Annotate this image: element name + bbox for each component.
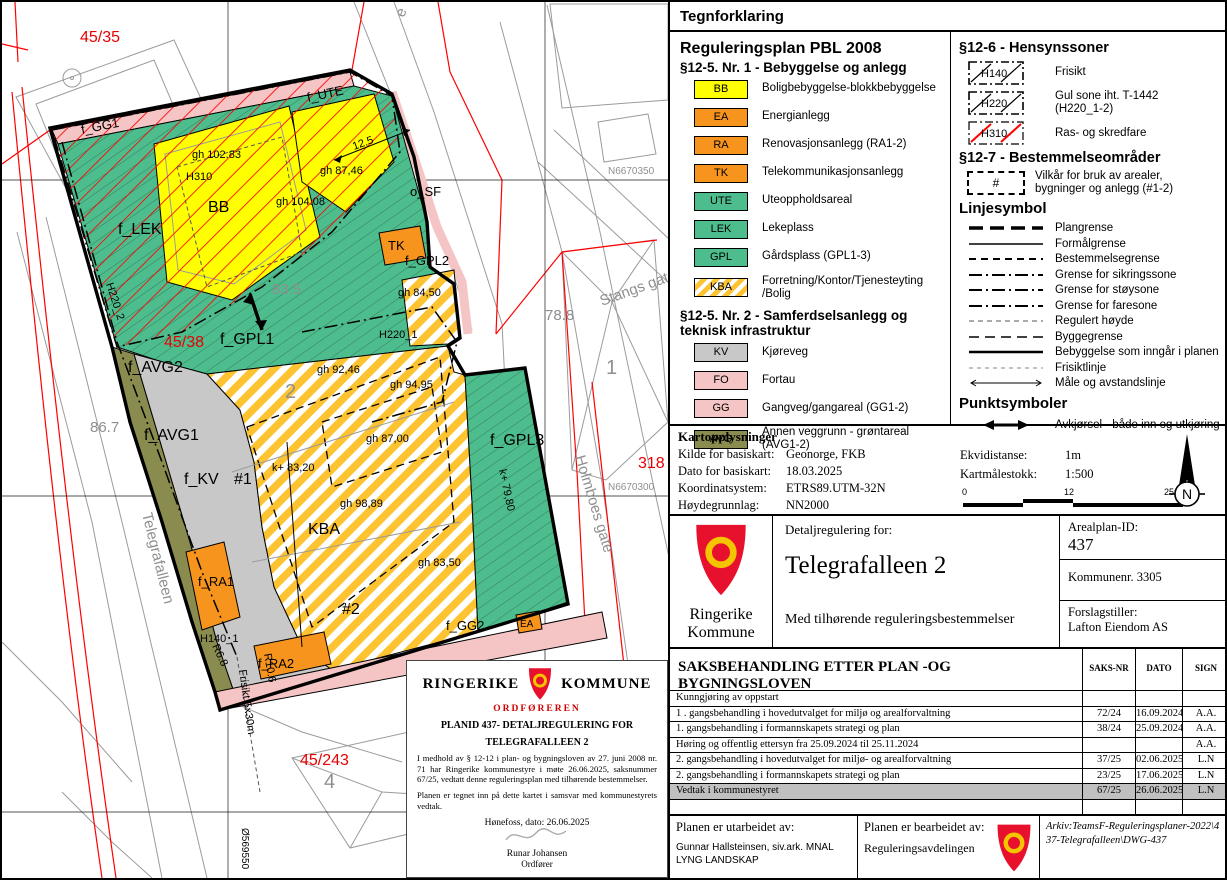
legend-item-label: Ras- og skredfare (1055, 127, 1146, 140)
legend-item-lek: LEKLekeplass (694, 219, 950, 240)
line-item-label: Byggegrense (1055, 331, 1123, 343)
case-row: 1 . gangsbehandling i hovedutvalget for … (670, 707, 1227, 723)
legend-item-ea: EAEnergianlegg (694, 107, 950, 128)
svg-text:83.5: 83.5 (272, 281, 301, 298)
legend-item-hash: # Vilkår for bruk av arealer, bygninger … (967, 170, 1227, 196)
svg-text:KBA: KBA (308, 521, 340, 538)
municipality-logo-cell: Ringerike Kommune (670, 516, 773, 647)
svg-text:f_AVG2: f_AVG2 (128, 359, 183, 376)
legend: Reguleringsplan PBL 2008 §12-5. Nr. 1 - … (670, 32, 1227, 426)
line-item-label: Grense for støysone (1055, 284, 1159, 296)
map-info-value: 1m (1065, 446, 1081, 465)
line-item-label: Grense for sikringssone (1055, 269, 1176, 281)
h140-hatch-chip: H140 (967, 60, 1045, 86)
map-info-value: 18.03.2025 (786, 463, 916, 480)
svg-text:f_RA1: f_RA1 (198, 574, 234, 589)
processed-by-cell: Planen er bearbeidet av: Reguleringsavde… (858, 816, 1040, 878)
gpl-color-chip: GPL (694, 248, 748, 267)
fo-color-chip: FO (694, 371, 748, 390)
svg-text:f_GPL2: f_GPL2 (405, 253, 449, 268)
col-saksnr: SAKS-NR (1082, 649, 1135, 690)
bb-color-chip: BB (694, 80, 748, 99)
svg-text:f_GPL1: f_GPL1 (220, 331, 274, 348)
legend-linjesymbol-heading: Linjesymbol (959, 200, 1227, 217)
plan-id-cells: Arealplan-ID: 437 Kommunenr. 3305 Forsla… (1060, 516, 1227, 647)
svg-text:gh 84,50: gh 84,50 (398, 287, 441, 299)
map-info-box: Kartopplysninger Kilde for basiskart:Geo… (670, 426, 1227, 516)
line-item: Formålgrense (967, 236, 1227, 252)
svg-text:12: 12 (1064, 487, 1074, 497)
stamp-paragraph1: I medhold av § 12-12 i plan- og bygnings… (417, 753, 657, 785)
legend-item-label: Frisikt (1055, 66, 1086, 79)
svg-text:1: 1 (606, 357, 617, 379)
svg-text:f_GG2: f_GG2 (446, 618, 484, 633)
legend-item-kba: KBAForretning/Kontor/Tjenesteyting /Boli… (694, 275, 950, 301)
svg-text:4: 4 (324, 771, 335, 793)
ringerike-shield-icon (527, 667, 553, 701)
stamp-name-left: RINGERIKE (423, 676, 520, 693)
stamp-name-right: KOMMUNE (561, 676, 651, 693)
svg-text:N6670300: N6670300 (608, 482, 655, 493)
gg-color-chip: GG (694, 399, 748, 418)
map-info-label: Kilde for basiskart: (670, 446, 786, 463)
line-item: Regulert høyde (967, 313, 1227, 329)
svg-text:f_LEK: f_LEK (118, 221, 162, 238)
municipality-name: Ringerike Kommune (670, 606, 772, 641)
stamp-header: RINGERIKE KOMMUNE (417, 667, 657, 701)
case-row: Høring og offentlig ettersyn fra 25.09.2… (670, 738, 1227, 754)
kv-color-chip: KV (694, 343, 748, 362)
signature-icon (502, 828, 572, 844)
svg-text:45/38: 45/38 (164, 334, 204, 351)
legend-s127-heading: §12-7 - Bestemmelseområder (959, 150, 1227, 167)
h220-hatch-chip: H220 (967, 90, 1045, 116)
stamp-signer: Runar Johansen (417, 849, 657, 859)
map-info-heading: Kartopplysninger (670, 426, 1227, 446)
case-processing-table: SAKSBEHANDLING ETTER PLAN -OG BYGNINGSLO… (670, 649, 1227, 816)
plan-sheet: 45/35 45/38 45/243 318 4 1 78.8 86.7 83.… (0, 0, 1227, 880)
svg-text:gh 92,46: gh 92,46 (317, 364, 360, 376)
svg-text:318: 318 (638, 455, 665, 472)
legend-item-ute: UTEUteoppholdsareal (694, 191, 950, 212)
plan-subtitle: Med tilhørende reguleringsbestemmelser (785, 612, 1059, 628)
detail-label: Detaljregulering for: (785, 522, 1059, 538)
legend-item-gg: GGGangveg/gangareal (GG1-2) (694, 398, 950, 419)
legend-item-bb: BBBoligbebyggelse-blokkbebyggelse (694, 79, 950, 100)
legend-item-tk: TKTelekommunikasjonsanlegg (694, 163, 950, 184)
legend-plan-heading: Reguleringsplan PBL 2008 (680, 40, 950, 58)
svg-text:f_AVG1: f_AVG1 (144, 427, 199, 444)
stamp-role: ORDFØREREN (417, 704, 657, 714)
line-item-label: Regulert høyde (1055, 315, 1134, 327)
svg-text:#1: #1 (234, 471, 252, 488)
legend-punktsymboler-heading: Punktsymboler (959, 395, 1227, 412)
svg-text:f_KV: f_KV (184, 471, 219, 488)
legend-item-ra: RARenovasjonsanlegg (RA1-2) (694, 135, 950, 156)
line-item-label: Måle og avstandslinje (1055, 377, 1166, 389)
legend-item-h140: H140 Frisikt (967, 60, 1227, 86)
title-block: Ringerike Kommune Detaljregulering for: … (670, 516, 1227, 649)
lek-color-chip: LEK (694, 220, 748, 239)
stamp-title1: PLANID 437- DETALJREGULERING FOR (417, 720, 657, 731)
svg-text:H220: H220 (981, 98, 1007, 110)
col-sign: SIGN (1182, 649, 1227, 690)
svg-text:H310: H310 (981, 128, 1007, 140)
footer-block: Planen er utarbeidet av: Gunnar Hallstei… (670, 816, 1227, 878)
approval-stamp: RINGERIKE KOMMUNE ORDFØREREN PLANID 437-… (406, 660, 668, 878)
forslagstiller-cell: Forslagstiller: Lafton Eiendom AS (1060, 601, 1227, 647)
svg-text:Ø569550: Ø569550 (239, 828, 250, 870)
svg-text:gh 83,50: gh 83,50 (418, 557, 461, 569)
line-item-label: Bebyggelse som inngår i planen (1055, 346, 1219, 358)
svg-text:gh 87,46: gh 87,46 (320, 165, 363, 177)
legend-s125-nr2-heading: §12-5. Nr. 2 - Samferdselsanlegg og tekn… (680, 308, 930, 339)
map-info-label: Dato for basiskart: (670, 463, 786, 480)
case-row (670, 800, 1227, 816)
arealplan-id-cell: Arealplan-ID: 437 (1060, 516, 1227, 560)
svg-text:N6670350: N6670350 (608, 166, 655, 177)
line-item: Bebyggelse som inngår i planen (967, 344, 1227, 360)
legend-item-label: Uteoppholdsareal (762, 194, 852, 207)
svg-text:TK: TK (388, 238, 405, 253)
svg-text:f_GPL3: f_GPL3 (490, 432, 544, 449)
case-row-decision: Vedtak i kommunestyret67/2526.06.2025L.N (670, 784, 1227, 800)
map-info-row: Kartmålestokk:1:500 (960, 465, 1150, 484)
legend-item-label: Boligbebyggelse-blokkbebyggelse (762, 82, 936, 95)
case-row: 2. gangsbehandling i hovedutvalget for m… (670, 753, 1227, 769)
svg-text:#2: #2 (342, 601, 360, 618)
legend-item-label: Forretning/Kontor/Tjenesteyting /Bolig (762, 275, 950, 301)
case-table-header: SAKSBEHANDLING ETTER PLAN -OG BYGNINGSLO… (670, 649, 1227, 691)
legend-item-label: Vilkår for bruk av arealer, bygninger og… (1035, 170, 1195, 196)
line-item-label: Frisiktlinje (1055, 362, 1106, 374)
svg-text:gh 94,95: gh 94,95 (390, 379, 433, 391)
case-row: 1. gangsbehandling i formannskapets stra… (670, 722, 1227, 738)
legend-item-label: Lekeplass (762, 222, 814, 235)
svg-text:0: 0 (962, 487, 967, 497)
legend-s126-heading: §12-6 - Hensynssoner (959, 40, 1227, 57)
svg-text:gh 104.08: gh 104.08 (276, 196, 325, 208)
stamp-paragraph2: Planen er tegnet inn på dette kartet i s… (417, 790, 657, 811)
case-row: Kunngjøring av oppstart (670, 691, 1227, 707)
svg-text:BB: BB (208, 199, 229, 216)
h310-hatch-chip: H310 (967, 120, 1045, 146)
map-info-value: Geonorge, FKB (786, 446, 916, 463)
legend-item-label: Energianlegg (762, 110, 830, 123)
ra-color-chip: RA (694, 136, 748, 155)
prepared-by-label: Planen er utarbeidet av: (676, 820, 851, 835)
prepared-by-cell: Planen er utarbeidet av: Gunnar Hallstei… (670, 816, 858, 878)
line-item-label: Bestemmelsegrense (1055, 253, 1160, 265)
legend-right-column: §12-6 - Hensynssoner H140 Frisikt H220 (950, 32, 1227, 424)
prepared-by-value: Gunnar Hallsteinsen, siv.ark. MNAL LYNG … (676, 842, 851, 867)
svg-text:o_SF: o_SF (410, 184, 441, 199)
legend-item-label: Gul sone iht. T-1442 (H220_1-2) (1055, 90, 1195, 116)
svg-text:k+ 83,20: k+ 83,20 (272, 462, 315, 474)
legend-item-label: Gangveg/gangareal (GG1-2) (762, 402, 908, 415)
line-item: Måle og avstandslinje (967, 375, 1227, 391)
legend-item-label: Renovasjonsanlegg (RA1-2) (762, 138, 906, 151)
legend-item-gpl: GPLGårdsplass (GPL1-3) (694, 247, 950, 268)
legend-item-h310: H310 Ras- og skredfare (967, 120, 1227, 146)
plan-map: 45/35 45/38 45/243 318 4 1 78.8 86.7 83.… (2, 2, 670, 878)
svg-text:gh 98,89: gh 98,89 (340, 498, 383, 510)
legend-item-label: Kjøreveg (762, 346, 808, 359)
kommunenr-cell: Kommunenr. 3305 (1060, 560, 1227, 601)
line-item: Bestemmelsegrense (967, 251, 1227, 267)
svg-text:45/35: 45/35 (80, 29, 120, 46)
plan-name: Telegrafalleen 2 (785, 552, 1059, 580)
male-avstand-line-icon (967, 378, 1045, 388)
legend-item-label: Telekommunikasjonsanlegg (762, 166, 903, 179)
stamp-title2: TELEGRAFALLEEN 2 (417, 737, 657, 748)
legend-item-label: Gårdsplass (GPL1-3) (762, 250, 871, 263)
plan-title-cell: Detaljregulering for: Telegrafalleen 2 M… (773, 516, 1060, 647)
info-panel: Tegnforklaring Reguleringsplan PBL 2008 … (668, 2, 1227, 878)
processed-by-label: Planen er bearbeidet av: (864, 820, 995, 835)
line-item: Frisiktlinje (967, 360, 1227, 376)
map-info-row: Ekvidistanse:1m (960, 446, 1150, 465)
svg-text:H220_1: H220_1 (379, 329, 418, 341)
map-info-right: Ekvidistanse:1m Kartmålestokk:1:500 (960, 446, 1150, 484)
map-info-label: Koordinatsystem: (670, 480, 786, 497)
map-info-label: Ekvidistanse: (960, 446, 1065, 465)
svg-text:EA: EA (520, 619, 534, 630)
legend-title: Tegnforklaring (670, 2, 1227, 32)
line-item: Plangrense (967, 220, 1227, 236)
svg-text:78.8: 78.8 (545, 307, 574, 324)
line-item: Byggegrense (967, 329, 1227, 345)
ringerike-shield-icon (995, 822, 1033, 874)
line-item: Grense for faresone (967, 298, 1227, 314)
line-item-label: Grense for faresone (1055, 300, 1157, 312)
legend-item-h220: H220 Gul sone iht. T-1442 (H220_1-2) (967, 90, 1227, 116)
map-info-value: NN2000 (786, 497, 916, 514)
legend-item-label: Fortau (762, 374, 795, 387)
stamp-place-date: Hønefoss, dato: 26.06.2025 (417, 818, 657, 828)
svg-text:H140: H140 (981, 68, 1007, 80)
map-info-label: Høydegrunnlag: (670, 497, 786, 514)
svg-text:gh 87,00: gh 87,00 (366, 433, 409, 445)
legend-left-column: Reguleringsplan PBL 2008 §12-5. Nr. 1 - … (670, 32, 950, 424)
case-row: 2. gangsbehandling i formannskapets stra… (670, 769, 1227, 785)
map-info-label: Kartmålestokk: (960, 465, 1065, 484)
line-item-label: Formålgrense (1055, 238, 1126, 250)
svg-text:45/243: 45/243 (300, 752, 349, 769)
archive-cell: Arkiv:TeamsF-Reguleringsplaner-2022\437-… (1040, 816, 1227, 878)
tk-color-chip: TK (694, 164, 748, 183)
north-arrow-icon: N (1158, 430, 1216, 514)
line-item: Grense for sikringssone (967, 267, 1227, 283)
svg-text:H310: H310 (186, 171, 212, 183)
legend-item-fo: FOFortau (694, 370, 950, 391)
archive-path: Arkiv:TeamsF-Reguleringsplaner-2022\437-… (1046, 820, 1223, 847)
map-info-value: 1:500 (1065, 465, 1093, 484)
svg-text:86.7: 86.7 (90, 419, 119, 436)
svg-text:2: 2 (285, 381, 296, 403)
ute-color-chip: UTE (694, 192, 748, 211)
line-item-label: Plangrense (1055, 222, 1113, 234)
kba-color-chip: KBA (694, 278, 748, 297)
svg-text:gh 102.83: gh 102.83 (192, 149, 241, 161)
legend-s125-nr1-heading: §12-5. Nr. 1 - Bebyggelse og anlegg (680, 60, 950, 76)
ringerike-shield-icon (692, 522, 750, 598)
case-table-title: SAKSBEHANDLING ETTER PLAN -OG BYGNINGSLO… (670, 649, 1082, 690)
processed-by-value: Reguleringsavdelingen (864, 841, 995, 856)
map-info-value: ETRS89.UTM-32N (786, 480, 916, 497)
col-dato: DATO (1135, 649, 1182, 690)
line-item: Grense for støysone (967, 282, 1227, 298)
legend-item-kv: KVKjøreveg (694, 342, 950, 363)
bestemmelse-chip: # (967, 171, 1025, 195)
stamp-signer-role: Ordfører (417, 859, 657, 869)
svg-text:N: N (1182, 486, 1192, 502)
ea-color-chip: EA (694, 108, 748, 127)
